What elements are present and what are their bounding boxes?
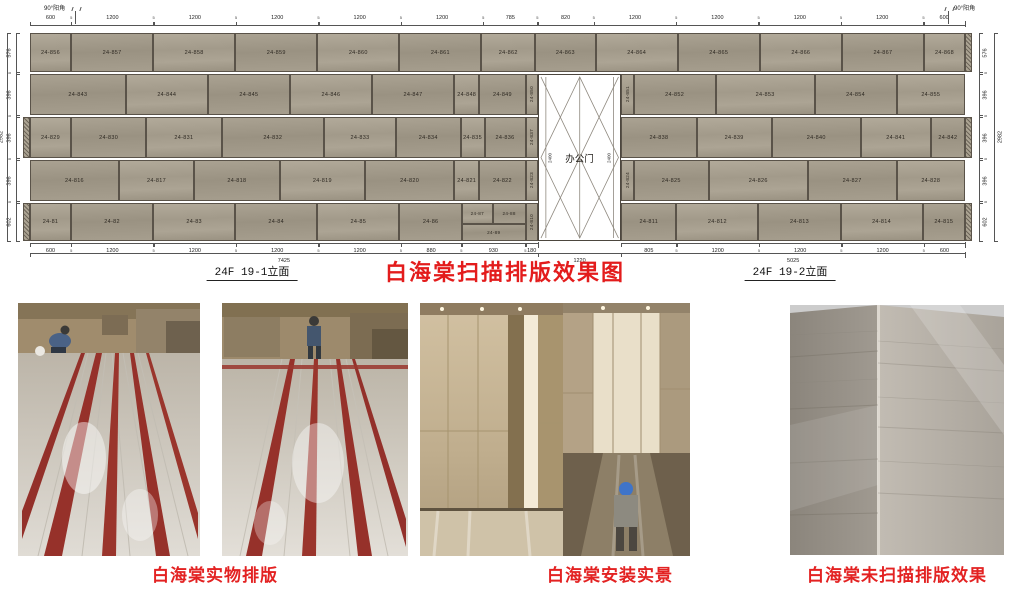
corner-marker-left	[75, 11, 76, 24]
stone-panel: 24-823	[526, 160, 538, 201]
section-title-right: 24F 19-2立面	[745, 263, 836, 281]
dimension-label: 1200	[711, 16, 723, 22]
stone-panel: 24-864	[596, 33, 678, 72]
elevation-drawing: 24-85624-85724-85824-85924-86024-86124-8…	[0, 0, 1010, 296]
stone-panel: 24-847	[372, 74, 454, 115]
dimension-label: 785	[506, 16, 515, 22]
dimension-segment	[462, 243, 526, 247]
dimension-segment	[401, 22, 483, 26]
dimension-label: 5	[923, 249, 925, 253]
panel-label: 24-86	[423, 219, 439, 225]
stone-panel: 24-827	[808, 160, 897, 201]
dimension-segment	[924, 243, 965, 247]
panel-label: 24-822	[493, 178, 512, 184]
dimension-segment	[236, 22, 318, 26]
stone-panel: 24-835	[461, 117, 485, 158]
stone-panel: 24-862	[481, 33, 535, 72]
panel-label: 24-810	[529, 214, 534, 230]
panel-label: 24-817	[147, 178, 166, 184]
stone-panel: 24-83	[153, 203, 235, 241]
photo-installed-2	[563, 303, 690, 556]
stone-panel: 24-844	[126, 74, 208, 115]
stone-panel: 24-816	[30, 160, 119, 201]
stone-panel: 24-84	[235, 203, 317, 241]
panel-label: 24-837	[529, 129, 534, 145]
door-height-dim: 2400	[607, 152, 612, 162]
dimension-segment	[526, 243, 538, 247]
dimension-label: 5	[153, 16, 155, 20]
panel-label: 24-85	[351, 219, 367, 225]
corner-angle-label-right: 90°阳角	[954, 3, 975, 12]
dimension-segment	[16, 203, 20, 241]
dimension-segment	[401, 243, 461, 247]
stone-panel: 24-842	[931, 117, 965, 158]
stone-panel: 24-846	[290, 74, 372, 115]
stone-panel: 24-845	[208, 74, 290, 115]
dimension-segment	[841, 22, 923, 26]
stone-panel: 24-821	[454, 160, 479, 201]
dimension-label: 600	[46, 16, 55, 22]
dimension-label: 5	[235, 249, 237, 253]
dimension-segment	[538, 22, 594, 26]
overall-height-label: 2982	[0, 131, 5, 143]
panel-label: 24-857	[103, 50, 122, 56]
stone-panel: 24-87	[462, 203, 493, 224]
dimension-label: 5	[840, 16, 842, 20]
dimension-segment	[621, 253, 965, 257]
panel-label: 24-826	[749, 178, 768, 184]
dimension-label: 820	[561, 16, 570, 22]
stone-panel: 24-848	[454, 74, 479, 115]
stone-panel: 24-824	[621, 160, 633, 201]
stone-panel: 24-863	[535, 33, 596, 72]
panel-label: 24-868	[935, 50, 954, 56]
panel-label: 24-864	[627, 50, 646, 56]
panel-label: 24-83	[186, 219, 202, 225]
dimension-label: 5	[840, 249, 842, 253]
stone-panel: 24-855	[897, 74, 965, 115]
dimension-label: 5	[757, 16, 759, 20]
panel-label: 24-855	[921, 92, 940, 98]
dimension-label: 5	[922, 16, 924, 20]
dimension-label: 5	[675, 249, 677, 253]
wall-return-tab	[965, 33, 972, 72]
stone-panel: 24-819	[280, 160, 365, 201]
dimension-segment	[30, 243, 71, 247]
panel-label: 24-81	[43, 219, 59, 225]
corner-angle-label-left: 90°阳角	[44, 3, 65, 12]
dimension-label: 5	[593, 16, 595, 20]
stone-panel: 24-830	[71, 117, 146, 158]
panel-label: 24-813	[790, 219, 809, 225]
stone-panel: 24-837	[526, 117, 538, 158]
dimension-tick	[979, 241, 983, 242]
stone-panel: 24-836	[485, 117, 526, 158]
dimension-segment	[7, 33, 11, 241]
panel-label: 24-851	[625, 86, 630, 102]
dimension-segment	[16, 160, 20, 201]
panel-label: 24-859	[267, 50, 286, 56]
panel-label: 24-87	[471, 211, 484, 216]
dimension-label: 396	[983, 90, 989, 99]
dimension-label: 396	[983, 133, 989, 142]
panel-label: 24-825	[662, 178, 681, 184]
dimension-tick	[965, 252, 966, 258]
caption-installed: 白海棠安装实景	[547, 561, 673, 586]
panel-label: 24-829	[41, 135, 60, 141]
dimension-segment	[924, 22, 965, 26]
panel-label: 24-818	[227, 178, 246, 184]
stone-panel: 24-832	[222, 117, 325, 158]
dimension-label: 576	[983, 48, 989, 57]
stone-panel: 24-861	[399, 33, 481, 72]
photo-installed-1	[420, 303, 563, 556]
dimension-label: 1200	[876, 16, 888, 22]
wall-return-tab	[965, 117, 972, 158]
wall-return-tab	[23, 203, 30, 241]
dimension-segment	[319, 22, 401, 26]
stone-panel: 24-841	[861, 117, 931, 158]
panel-label: 24-82	[104, 219, 120, 225]
panel-label: 24-827	[843, 178, 862, 184]
panel-label: 24-865	[709, 50, 728, 56]
panel-label: 24-88	[502, 211, 515, 216]
dimension-segment	[319, 243, 401, 247]
panel-label: 24-849	[493, 92, 512, 98]
stone-panel: 24-826	[709, 160, 808, 201]
panel-label: 24-846	[321, 92, 340, 98]
page: 24-85624-85724-85824-85924-86024-86124-8…	[0, 0, 1010, 591]
panel-label: 24-854	[846, 92, 865, 98]
stone-panel: 24-854	[815, 74, 897, 115]
dimension-segment	[842, 243, 924, 247]
photo-physical-layout-2	[222, 303, 408, 556]
wall-return-tab	[965, 203, 972, 241]
corner-marker-right	[948, 11, 949, 24]
dimension-segment	[483, 22, 537, 26]
dimension-label: 602	[983, 217, 989, 226]
dimension-label: 1200	[354, 16, 366, 22]
office-door: 办公门24002400	[538, 74, 621, 241]
panel-label: 24-866	[791, 50, 810, 56]
caption-physical-layout: 白海棠实物排版	[152, 561, 278, 586]
stone-panel: 24-860	[317, 33, 399, 72]
dimension-label: 5	[984, 72, 988, 74]
stone-panel: 24-834	[396, 117, 461, 158]
dimension-label: 5	[758, 249, 760, 253]
panel-label: 24-858	[185, 50, 204, 56]
panel-label: 24-839	[725, 135, 744, 141]
panel-label: 24-862	[499, 50, 518, 56]
panel-label: 24-84	[268, 219, 284, 225]
panel-label: 24-834	[419, 135, 438, 141]
door-height-dim: 2400	[547, 152, 552, 162]
panel-label: 24-831	[174, 135, 193, 141]
dimension-label: 1200	[629, 16, 641, 22]
dimension-segment	[154, 22, 236, 26]
stone-panel: 24-822	[479, 160, 525, 201]
panel-label: 24-812	[708, 219, 727, 225]
dimension-segment	[16, 74, 20, 115]
photo-unscanned-wall-image	[790, 305, 1004, 555]
dimension-segment	[676, 22, 758, 26]
stone-panel: 24-843	[30, 74, 126, 115]
stone-panel: 24-865	[678, 33, 760, 72]
stone-panel: 24-85	[317, 203, 399, 241]
stone-panel: 24-839	[697, 117, 772, 158]
panel-label: 24-844	[157, 92, 176, 98]
dimension-label: 5	[536, 16, 538, 20]
dimension-segment	[30, 22, 71, 26]
dimension-segment	[71, 22, 153, 26]
stone-panel-stack: 24-8724-8824-89	[462, 203, 526, 241]
panel-label: 24-852	[665, 92, 684, 98]
photo-installed-1-image	[420, 303, 563, 556]
stone-panel: 24-817	[119, 160, 194, 201]
dimension-label: 1200	[106, 16, 118, 22]
dimension-tick	[7, 241, 11, 242]
dimension-segment	[759, 22, 841, 26]
panel-label: 24-842	[938, 135, 957, 141]
panel-label: 24-860	[349, 50, 368, 56]
dimension-tick	[538, 242, 539, 248]
panel-label: 24-861	[431, 50, 450, 56]
dimension-segment	[16, 33, 20, 72]
photo-unscanned-wall	[790, 305, 1004, 555]
dimension-segment	[759, 243, 841, 247]
stone-panel: 24-867	[842, 33, 924, 72]
dimension-label: 5	[482, 16, 484, 20]
dimension-label: 5	[984, 158, 988, 160]
stone-panel: 24-857	[71, 33, 153, 72]
dimension-segment	[677, 243, 759, 247]
dimension-label: 5	[400, 249, 402, 253]
dimension-label: 1200	[794, 16, 806, 22]
panel-label: 24-847	[404, 92, 423, 98]
panel-label: 24-853	[756, 92, 775, 98]
stone-panel: 24-853	[716, 74, 815, 115]
dimension-label: 5	[984, 115, 988, 117]
stone-panel: 24-856	[30, 33, 71, 72]
dimension-label: 5	[317, 249, 319, 253]
dimension-tick	[16, 241, 20, 242]
panel-label: 24-840	[807, 135, 826, 141]
panel-label: 24-824	[625, 172, 630, 188]
panel-label: 24-838	[649, 135, 668, 141]
stone-panel: 24-81	[30, 203, 71, 241]
dimension-label: 5	[317, 16, 319, 20]
photo-physical-layout-1	[18, 303, 200, 556]
panel-label: 24-843	[68, 92, 87, 98]
panel-label: 24-835	[463, 135, 482, 141]
dimension-segment	[16, 117, 20, 158]
dimension-tick	[994, 241, 998, 242]
panel-label: 24-863	[556, 50, 575, 56]
panel-label: 24-832	[263, 135, 282, 141]
stone-panel: 24-849	[479, 74, 525, 115]
panel-label: 24-89	[487, 230, 500, 235]
stone-panel: 24-850	[526, 74, 538, 115]
panel-label: 24-823	[529, 172, 534, 188]
door-label: 办公门	[565, 151, 594, 165]
stone-panel: 24-86	[399, 203, 462, 241]
dimension-segment	[594, 22, 676, 26]
stone-panel: 24-859	[235, 33, 317, 72]
caption-unscanned: 白海棠未扫描排版效果	[807, 561, 987, 586]
dimension-tick	[965, 242, 966, 248]
panel-label: 24-848	[457, 92, 476, 98]
panel-label: 24-815	[934, 219, 953, 225]
panel-label: 24-856	[41, 50, 60, 56]
dimension-label: 5	[460, 249, 462, 253]
stone-panel: 24-831	[146, 117, 221, 158]
stone-panel: 24-868	[924, 33, 965, 72]
stone-panel: 24-815	[923, 203, 965, 241]
photo-physical-layout-1-image	[18, 303, 200, 556]
stone-panel: 24-858	[153, 33, 235, 72]
dimension-label: 1200	[436, 16, 448, 22]
overall-height-label: 2982	[998, 131, 1004, 143]
panel-label: 24-830	[99, 135, 118, 141]
panel-label: 24-820	[400, 178, 419, 184]
stone-panel: 24-851	[621, 74, 633, 115]
photo-physical-layout-2-image	[222, 303, 408, 556]
dimension-label: 5	[675, 16, 677, 20]
dimension-label: 5	[235, 16, 237, 20]
panel-label: 24-867	[873, 50, 892, 56]
panel-label: 24-841	[886, 135, 905, 141]
stone-panel: 24-866	[760, 33, 842, 72]
panel-label: 24-833	[351, 135, 370, 141]
stone-panel: 24-829	[30, 117, 71, 158]
stone-panel: 24-813	[758, 203, 840, 241]
stone-panel: 24-810	[526, 203, 538, 241]
dimension-label: 396	[983, 176, 989, 185]
stone-panel: 24-82	[71, 203, 153, 241]
stone-panel: 24-838	[621, 117, 696, 158]
dimension-segment	[236, 243, 318, 247]
dimension-label: 5	[70, 249, 72, 253]
stone-panel: 24-811	[621, 203, 676, 241]
panel-label: 24-828	[921, 178, 940, 184]
stone-panel: 24-825	[634, 160, 709, 201]
panel-label: 24-814	[872, 219, 891, 225]
stone-panel: 24-88	[493, 203, 526, 224]
dimension-label: 5	[984, 201, 988, 203]
panel-label: 24-819	[313, 178, 332, 184]
stone-panel: 24-818	[194, 160, 279, 201]
dimension-label: 5	[400, 16, 402, 20]
dimension-label: 5	[70, 16, 72, 20]
panel-label: 24-811	[640, 219, 659, 225]
panel-label: 24-836	[496, 135, 515, 141]
dimension-segment	[621, 243, 676, 247]
panel-label: 24-845	[239, 92, 258, 98]
photo-installed-2-image	[563, 303, 690, 556]
dimension-label: 5	[153, 249, 155, 253]
dimension-label: 1200	[189, 16, 201, 22]
stone-panel: 24-814	[841, 203, 923, 241]
dimension-label: 1200	[271, 16, 283, 22]
stone-panel: 24-89	[462, 224, 526, 241]
page-title: 白海棠扫描排版效果图	[385, 255, 625, 287]
dimension-tick	[965, 21, 966, 27]
dimension-segment	[71, 243, 153, 247]
stone-panel: 24-828	[897, 160, 965, 201]
stone-panel: 24-852	[634, 74, 716, 115]
panel-label: 24-816	[65, 178, 84, 184]
wall-return-tab	[23, 117, 30, 158]
stone-panel: 24-840	[772, 117, 861, 158]
stone-panel: 24-833	[324, 117, 396, 158]
section-title-left: 24F 19-1立面	[207, 263, 298, 281]
panel-label: 24-850	[529, 86, 534, 102]
dimension-segment	[154, 243, 236, 247]
panel-label: 24-821	[457, 178, 476, 184]
stone-panel: 24-820	[365, 160, 454, 201]
stone-panel: 24-812	[676, 203, 758, 241]
